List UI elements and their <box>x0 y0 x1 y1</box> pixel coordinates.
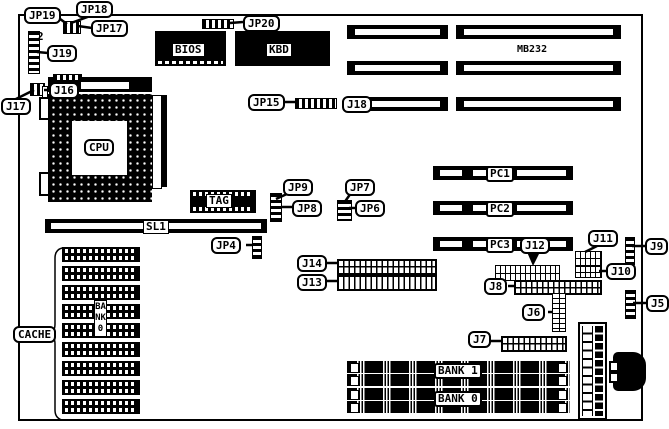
power-connector <box>578 322 607 420</box>
simm-clip <box>350 403 359 413</box>
j11-text: J11 <box>593 232 613 245</box>
j18-callout: J18 <box>342 96 372 113</box>
jp8-callout: JP8 <box>292 200 322 217</box>
j9-header <box>625 237 635 265</box>
jp7-text: JP7 <box>350 181 370 194</box>
simm-clip <box>558 390 567 400</box>
j11-header <box>575 251 602 266</box>
simm-clip <box>558 363 567 373</box>
jp7-callout: JP7 <box>345 179 375 196</box>
pin2-label: 2 <box>37 31 44 42</box>
pc3-text: PC3 <box>490 238 510 251</box>
sl1-text: SL1 <box>146 220 166 233</box>
pci-inner <box>440 170 462 176</box>
tag-text: TAG <box>209 194 229 207</box>
cpu-socket-top-pins <box>53 74 82 81</box>
pci-inner <box>517 205 566 211</box>
j13-callout: J13 <box>297 274 327 291</box>
isa-slot-inner <box>464 101 613 107</box>
pc1-text: PC1 <box>490 167 510 180</box>
cpu-label: CPU <box>84 139 114 156</box>
jp18-callout: JP18 <box>76 1 113 18</box>
j5-header <box>625 290 636 319</box>
cache-chip <box>62 342 140 357</box>
jp17-callout: JP17 <box>91 20 128 37</box>
cpu-socket-lever-slot <box>80 81 130 90</box>
jp20-callout: JP20 <box>243 15 280 32</box>
pc2-label: PC2 <box>486 201 514 217</box>
j14-callout: J14 <box>297 255 327 272</box>
jp15-callout: JP15 <box>248 94 285 111</box>
j17-callout: J17 <box>1 98 31 115</box>
jp15-jumper <box>295 98 337 109</box>
j5-callout: J5 <box>646 295 669 312</box>
pci-inner <box>473 205 487 211</box>
cpu-socket-left-tab-bottom <box>39 172 50 196</box>
keyboard-din-tab-bottom <box>609 372 619 383</box>
jp6-callout: JP6 <box>355 200 385 217</box>
bios-text: BIOS <box>175 43 202 56</box>
isa-slot-row3-right <box>456 97 621 111</box>
jp15-text: JP15 <box>253 96 280 109</box>
j9-text: J9 <box>650 240 663 253</box>
simm-clip <box>350 390 359 400</box>
j7-header <box>501 336 567 352</box>
j17-text: J17 <box>6 100 26 113</box>
pc1-label: PC1 <box>486 166 514 182</box>
bank0-vertical-text: BANK0 <box>95 302 106 334</box>
j16-text: J16 <box>54 84 74 97</box>
keyboard-din-tab-top <box>609 361 619 372</box>
bank0-text: BANK 0 <box>438 392 478 405</box>
j6-callout: J6 <box>522 304 545 321</box>
jp18-text: JP18 <box>81 3 108 16</box>
j12-callout: J12 <box>520 237 550 254</box>
jp6-text: JP6 <box>360 202 380 215</box>
simm-clip <box>558 403 567 413</box>
isa-slot-inner <box>464 65 613 71</box>
simm-clip <box>350 363 359 373</box>
isa-slot-row2-left <box>347 61 448 75</box>
simm-clip <box>558 376 567 386</box>
jp9-jp8-jumper <box>270 193 282 222</box>
jp4-callout: JP4 <box>211 237 241 254</box>
jp20-text: JP20 <box>248 17 275 30</box>
bios-socket-pins <box>158 61 223 64</box>
cache-callout: CACHE <box>13 326 56 343</box>
j6-header <box>552 293 566 332</box>
cache-text: CACHE <box>18 328 51 341</box>
j14-header <box>337 259 437 275</box>
j8-callout: J8 <box>484 278 507 295</box>
j19-callout: J19 <box>47 45 77 62</box>
j10-text: J10 <box>611 265 631 278</box>
cache-chip <box>62 266 140 281</box>
cpu-socket-right-channel <box>152 95 162 189</box>
kbd-label: KBD <box>266 43 292 57</box>
mb232-label: MB232 <box>517 44 547 55</box>
pin2-text: 2 <box>37 30 44 43</box>
j13-text: J13 <box>302 276 322 289</box>
j6-text: J6 <box>527 306 540 319</box>
simm-clip <box>350 376 359 386</box>
power-connector-pins-left <box>582 326 593 416</box>
sl1-label: SL1 <box>143 220 169 234</box>
isa-slot-inner <box>355 29 440 35</box>
jp19-callout: JP19 <box>24 7 61 24</box>
j5-text: J5 <box>651 297 664 310</box>
jp19-text: JP19 <box>29 9 56 22</box>
j16-callout: J16 <box>49 82 79 99</box>
bios-label: BIOS <box>172 43 205 57</box>
pci-inner <box>440 241 462 247</box>
jp7-jp6-jumper <box>337 200 352 221</box>
pci-inner <box>440 205 462 211</box>
tag-label: TAG <box>206 194 232 208</box>
pc2-text: PC2 <box>490 202 510 215</box>
bank0-label: BANK 0 <box>434 391 482 407</box>
jp9-text: JP9 <box>288 181 308 194</box>
j10-callout: J10 <box>606 263 636 280</box>
j19-text: J19 <box>52 47 72 60</box>
mb232-text: MB232 <box>517 44 547 55</box>
jp20-jumper <box>202 19 234 29</box>
j8-text: J8 <box>489 280 502 293</box>
cache-chip <box>62 361 140 376</box>
j13-header <box>337 275 437 291</box>
pci-inner <box>517 170 566 176</box>
cache-chip <box>62 285 140 300</box>
j7-text: J7 <box>473 333 486 346</box>
kbd-text: KBD <box>269 43 289 56</box>
bank1-text: BANK 1 <box>438 364 478 377</box>
isa-slot-row2-right <box>456 61 621 75</box>
isa-slot-inner <box>464 29 613 35</box>
bank0-vertical-label: BANK0 <box>94 300 107 337</box>
jp8-text: JP8 <box>297 202 317 215</box>
j9-callout: J9 <box>645 238 668 255</box>
j14-text: J14 <box>302 257 322 270</box>
j7-callout: J7 <box>468 331 491 348</box>
pc3-label: PC3 <box>486 237 514 253</box>
bank1-label: BANK 1 <box>434 363 482 379</box>
j11-callout: J11 <box>588 230 618 247</box>
jp19-jp18-jp17-jumper-block <box>63 21 81 34</box>
cache-chip <box>62 399 140 414</box>
jp17-text: JP17 <box>96 22 123 35</box>
jp4-text: JP4 <box>216 239 236 252</box>
cache-chip <box>62 247 140 262</box>
motherboard-diagram: 2 CPU BIOS KBD MB232 TAG SL1 <box>0 0 669 429</box>
jp4-jumper <box>252 236 262 259</box>
j12-text: J12 <box>525 239 545 252</box>
isa-slot-row1-right <box>456 25 621 39</box>
isa-slot-inner <box>355 65 440 71</box>
pci-inner <box>473 170 487 176</box>
jp9-callout: JP9 <box>283 179 313 196</box>
cpu-socket-left-tab-top <box>39 97 50 120</box>
j10-header <box>575 266 602 278</box>
cpu-text: CPU <box>89 141 109 154</box>
j18-text: J18 <box>347 98 367 111</box>
power-connector-pins-right <box>595 326 603 416</box>
isa-slot-row1-left <box>347 25 448 39</box>
cache-chip <box>62 380 140 395</box>
pci-inner <box>473 241 487 247</box>
